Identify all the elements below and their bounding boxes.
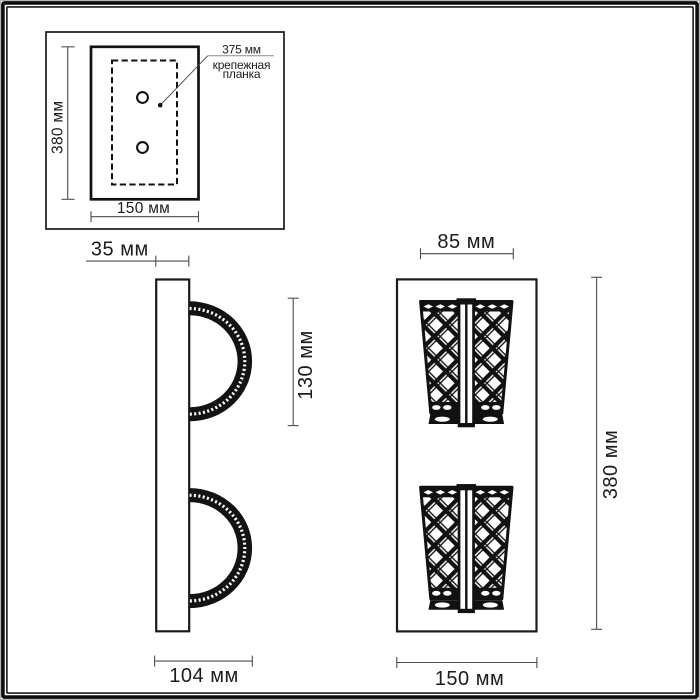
svg-text:150 мм: 150 мм bbox=[435, 668, 504, 690]
svg-text:104 мм: 104 мм bbox=[169, 665, 238, 687]
svg-text:375 мм: 375 мм bbox=[222, 42, 261, 56]
svg-text:150 мм: 150 мм bbox=[117, 200, 170, 217]
svg-text:35 мм: 35 мм bbox=[91, 238, 149, 260]
svg-text:планка: планка bbox=[223, 67, 261, 81]
svg-text:85 мм: 85 мм bbox=[437, 231, 495, 253]
svg-text:380 мм: 380 мм bbox=[50, 101, 67, 154]
svg-text:130 мм: 130 мм bbox=[295, 330, 317, 399]
svg-text:380 мм: 380 мм bbox=[600, 430, 622, 499]
